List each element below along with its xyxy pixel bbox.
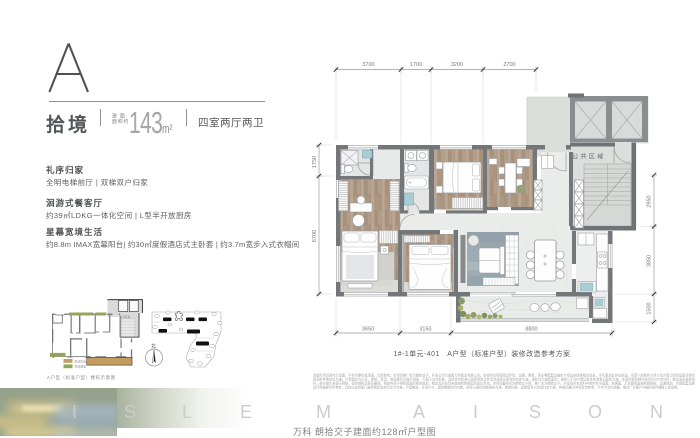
- svg-text:赠送阳台: 赠送阳台: [75, 358, 87, 363]
- svg-text:3200: 3200: [451, 62, 463, 68]
- svg-text:2700: 2700: [503, 62, 515, 68]
- svg-text:8800: 8800: [525, 327, 537, 333]
- svg-text:6700: 6700: [312, 230, 318, 242]
- svg-text:1#-1单元-401 A户型（标准户型）装修改造参考方案: 1#-1单元-401 A户型（标准户型）装修改造参考方案: [393, 349, 570, 358]
- svg-text:3700: 3700: [362, 62, 374, 68]
- svg-text:1750: 1750: [312, 156, 318, 168]
- svg-text:1700: 1700: [410, 62, 422, 68]
- svg-text:公共区域: 公共区域: [120, 315, 131, 319]
- svg-text:公共区域: 公共区域: [572, 153, 606, 161]
- svg-text:2950: 2950: [647, 195, 653, 207]
- svg-text:北: 北: [151, 343, 156, 350]
- svg-text:3650: 3650: [362, 327, 374, 333]
- svg-text:3850: 3850: [647, 255, 653, 267]
- svg-text:1500: 1500: [647, 302, 653, 314]
- svg-text:3150: 3150: [419, 327, 431, 333]
- svg-text:赠送飘窗: 赠送飘窗: [75, 364, 87, 369]
